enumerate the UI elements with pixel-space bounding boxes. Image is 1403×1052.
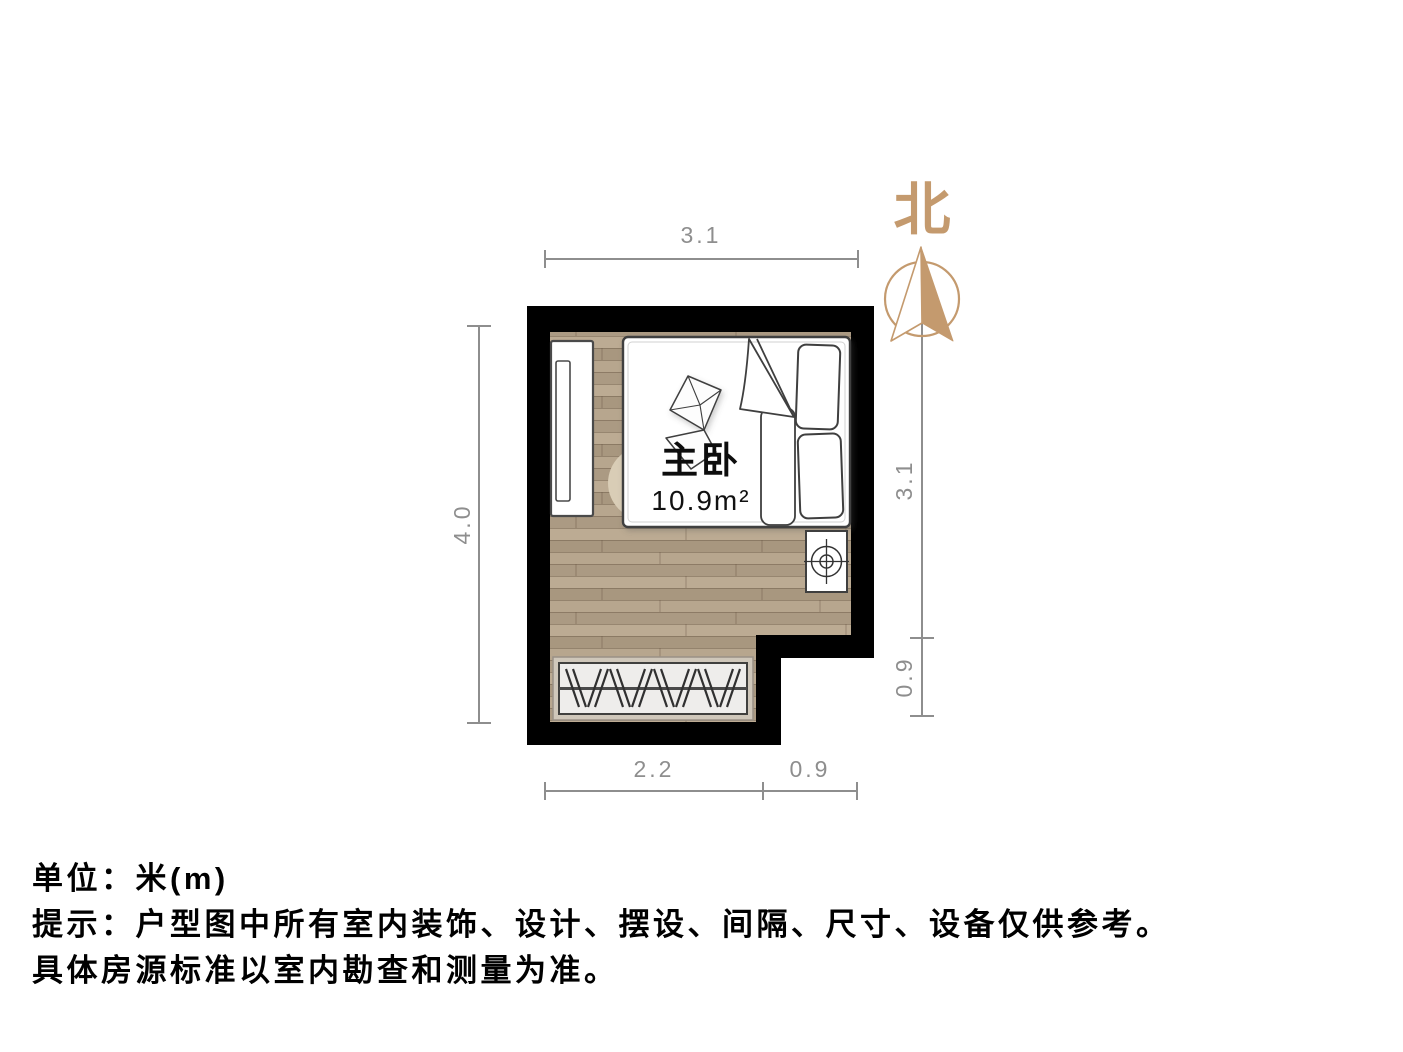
tip-note: 提示：户型图中所有室内装饰、设计、摆设、间隔、尺寸、设备仅供参考。 [32, 902, 1362, 948]
dimension-bottom-inner-label: 2.2 [634, 756, 675, 782]
side-cabinet-icon [551, 341, 593, 516]
floorplan-canvas: 主卧 10.9m² 3.1 4.0 3.1 0.9 [0, 0, 1403, 1052]
room-name-label: 主卧 [661, 440, 741, 481]
unit-note: 单位：米(m) [32, 856, 1362, 902]
compass-north-label: 北 [894, 178, 951, 242]
compass-north-icon: 北 [885, 178, 959, 341]
dimension-bottom [545, 782, 857, 800]
dimension-top [545, 250, 858, 268]
footer-notes: 单位：米(m) 提示：户型图中所有室内装饰、设计、摆设、间隔、尺寸、设备仅供参考… [32, 856, 1362, 994]
ceiling-fixture-icon [804, 531, 849, 592]
wardrobe-hangers-icon [553, 657, 753, 720]
dimension-right-lower-label: 0.9 [891, 657, 917, 698]
room-area-label: 10.9m² [651, 485, 750, 516]
dimension-left-label: 4.0 [449, 504, 475, 545]
dimension-right-upper-label: 3.1 [891, 460, 917, 501]
dimension-bottom-outer-label: 0.9 [790, 756, 831, 782]
survey-note: 具体房源标准以室内勘查和测量为准。 [32, 948, 1362, 994]
dimension-top-label: 3.1 [681, 222, 722, 248]
